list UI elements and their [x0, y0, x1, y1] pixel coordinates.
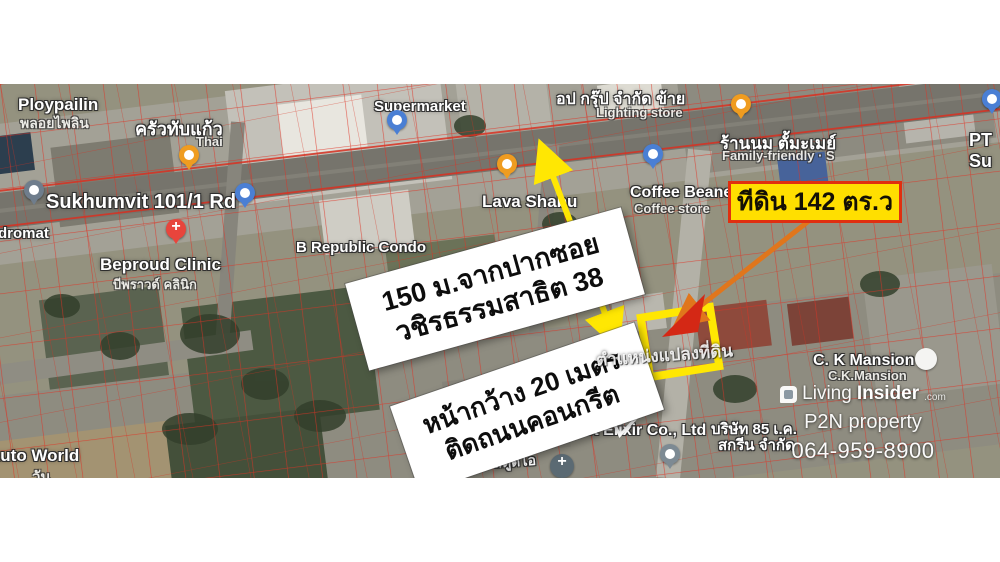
agency-name: P2N property: [768, 411, 958, 434]
satellite-map: Ploypailin พลอยไพลิน ครัวทับแก้ว Thai Su…: [0, 84, 1000, 478]
brand-row: LivingInsider.com: [768, 383, 958, 405]
brand-prefix: Living: [802, 383, 852, 405]
brand-tld: .com: [924, 392, 946, 405]
agency-phone: 064-959-8900: [768, 438, 958, 464]
red-plot-marker: [662, 294, 705, 337]
brand-logo-icon: [780, 386, 797, 403]
brand-watermark: LivingInsider.com P2N property 064-959-8…: [768, 383, 958, 464]
land-area-badge: ทีดิน 142 ตร.ว: [728, 181, 902, 223]
brand-suffix: Insider: [857, 383, 919, 405]
listing-image-canvas: Ploypailin พลอยไพลิน ครัวทับแก้ว Thai Su…: [0, 0, 1000, 562]
